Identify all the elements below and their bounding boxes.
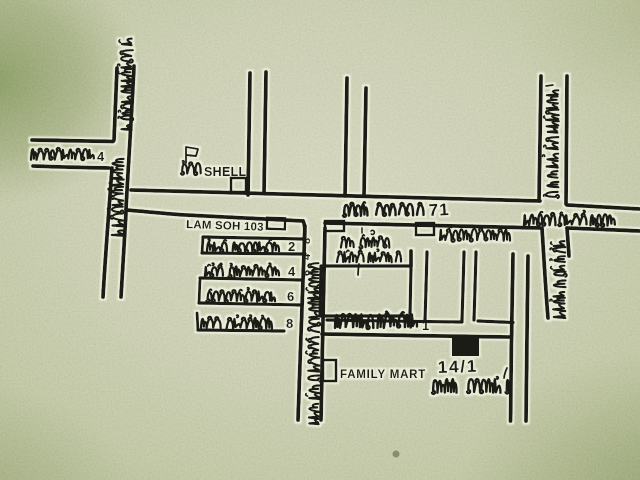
svg-text:71: 71 [428,200,450,220]
svg-text:2: 2 [288,239,296,254]
svg-text:6: 6 [301,270,313,276]
svg-text:4: 4 [288,264,296,279]
svg-text:FAMILY MART: FAMILY MART [340,369,426,381]
svg-text:8: 8 [286,316,294,331]
svg-text:4: 4 [301,253,313,260]
svg-text:4: 4 [97,149,105,164]
svg-text:6: 6 [287,289,295,304]
svg-text:1: 1 [422,318,430,333]
svg-text:14/1: 14/1 [437,357,478,377]
svg-text:8: 8 [301,238,313,244]
